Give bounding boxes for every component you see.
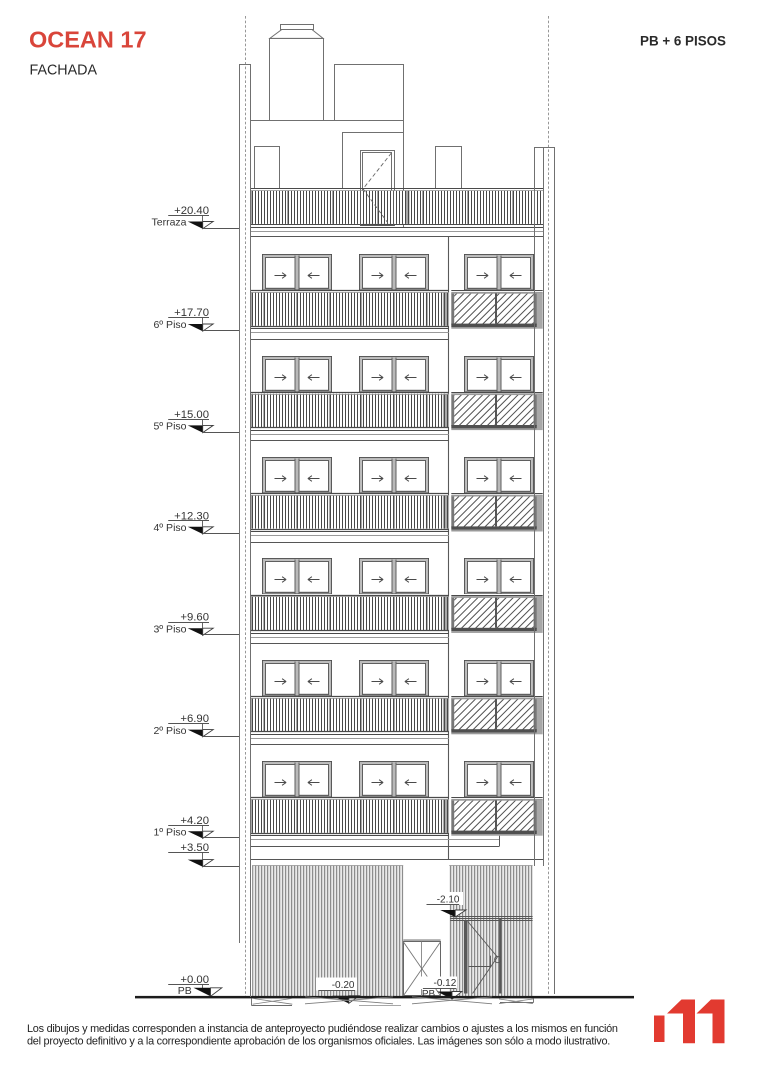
svg-text:del proyecto definitivo y a la: del proyecto definitivo y a la correspon…: [27, 1035, 610, 1047]
svg-text:Terraza: Terraza: [151, 217, 186, 229]
svg-text:-0.20: -0.20: [332, 980, 355, 991]
svg-text:PB + 6 PISOS: PB + 6 PISOS: [640, 34, 726, 49]
svg-text:-0.12: -0.12: [434, 978, 457, 989]
svg-text:2º Piso: 2º Piso: [153, 725, 186, 737]
svg-text:OCEAN 17: OCEAN 17: [29, 27, 147, 53]
svg-text:Los dibujos y medidas correspo: Los dibujos y medidas corresponden a ins…: [27, 1023, 618, 1035]
svg-text:6º Piso: 6º Piso: [153, 319, 186, 331]
svg-text:5º Piso: 5º Piso: [153, 421, 186, 433]
svg-text:FACHADA: FACHADA: [30, 63, 98, 79]
svg-text:3º Piso: 3º Piso: [153, 623, 186, 635]
svg-text:4º Piso: 4º Piso: [153, 522, 186, 534]
svg-text:1º Piso: 1º Piso: [153, 826, 186, 838]
svg-text:-2.10: -2.10: [437, 895, 460, 906]
svg-text:PB: PB: [178, 985, 192, 997]
svg-text:+9.60: +9.60: [180, 612, 209, 624]
